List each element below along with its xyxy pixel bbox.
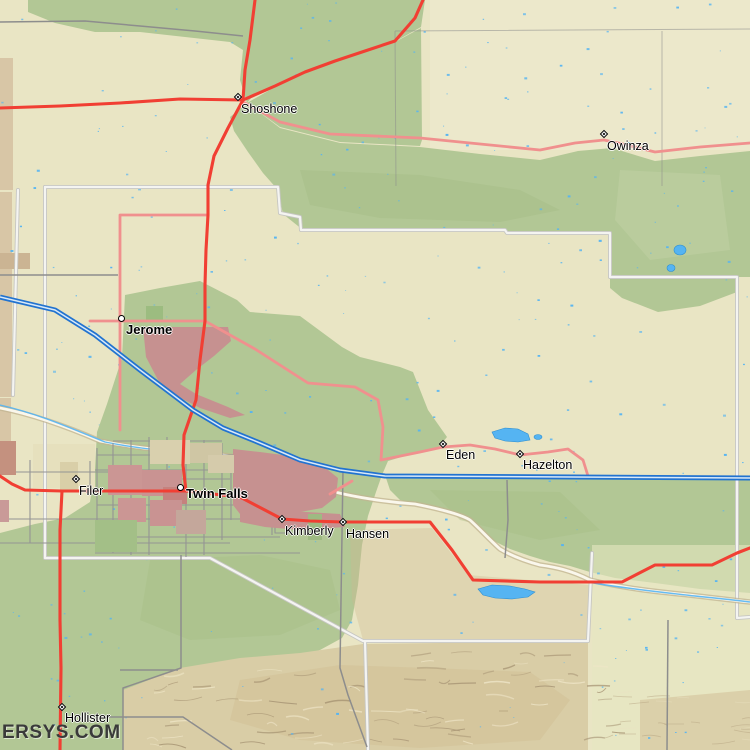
map-graphics — [0, 0, 750, 750]
place-marker-jerome — [118, 315, 125, 322]
place-label-kimberly: Kimberly — [285, 524, 334, 538]
place-label-filer: Filer — [79, 484, 103, 498]
place-label-jerome: Jerome — [126, 322, 172, 337]
place-label-hansen: Hansen — [346, 527, 389, 541]
place-marker-twin-falls — [177, 484, 184, 491]
place-label-owinza: Owinza — [607, 139, 649, 153]
map-canvas: ShoshoneOwinzaJeromeEdenHazeltonFilerTwi… — [0, 0, 750, 750]
terrain-layer — [0, 0, 750, 750]
place-label-eden: Eden — [446, 448, 475, 462]
place-label-hazelton: Hazelton — [523, 458, 572, 472]
place-label-shoshone: Shoshone — [241, 102, 297, 116]
watermark: ERSYS.COM — [2, 722, 121, 744]
place-label-twin-falls: Twin Falls — [186, 486, 248, 501]
